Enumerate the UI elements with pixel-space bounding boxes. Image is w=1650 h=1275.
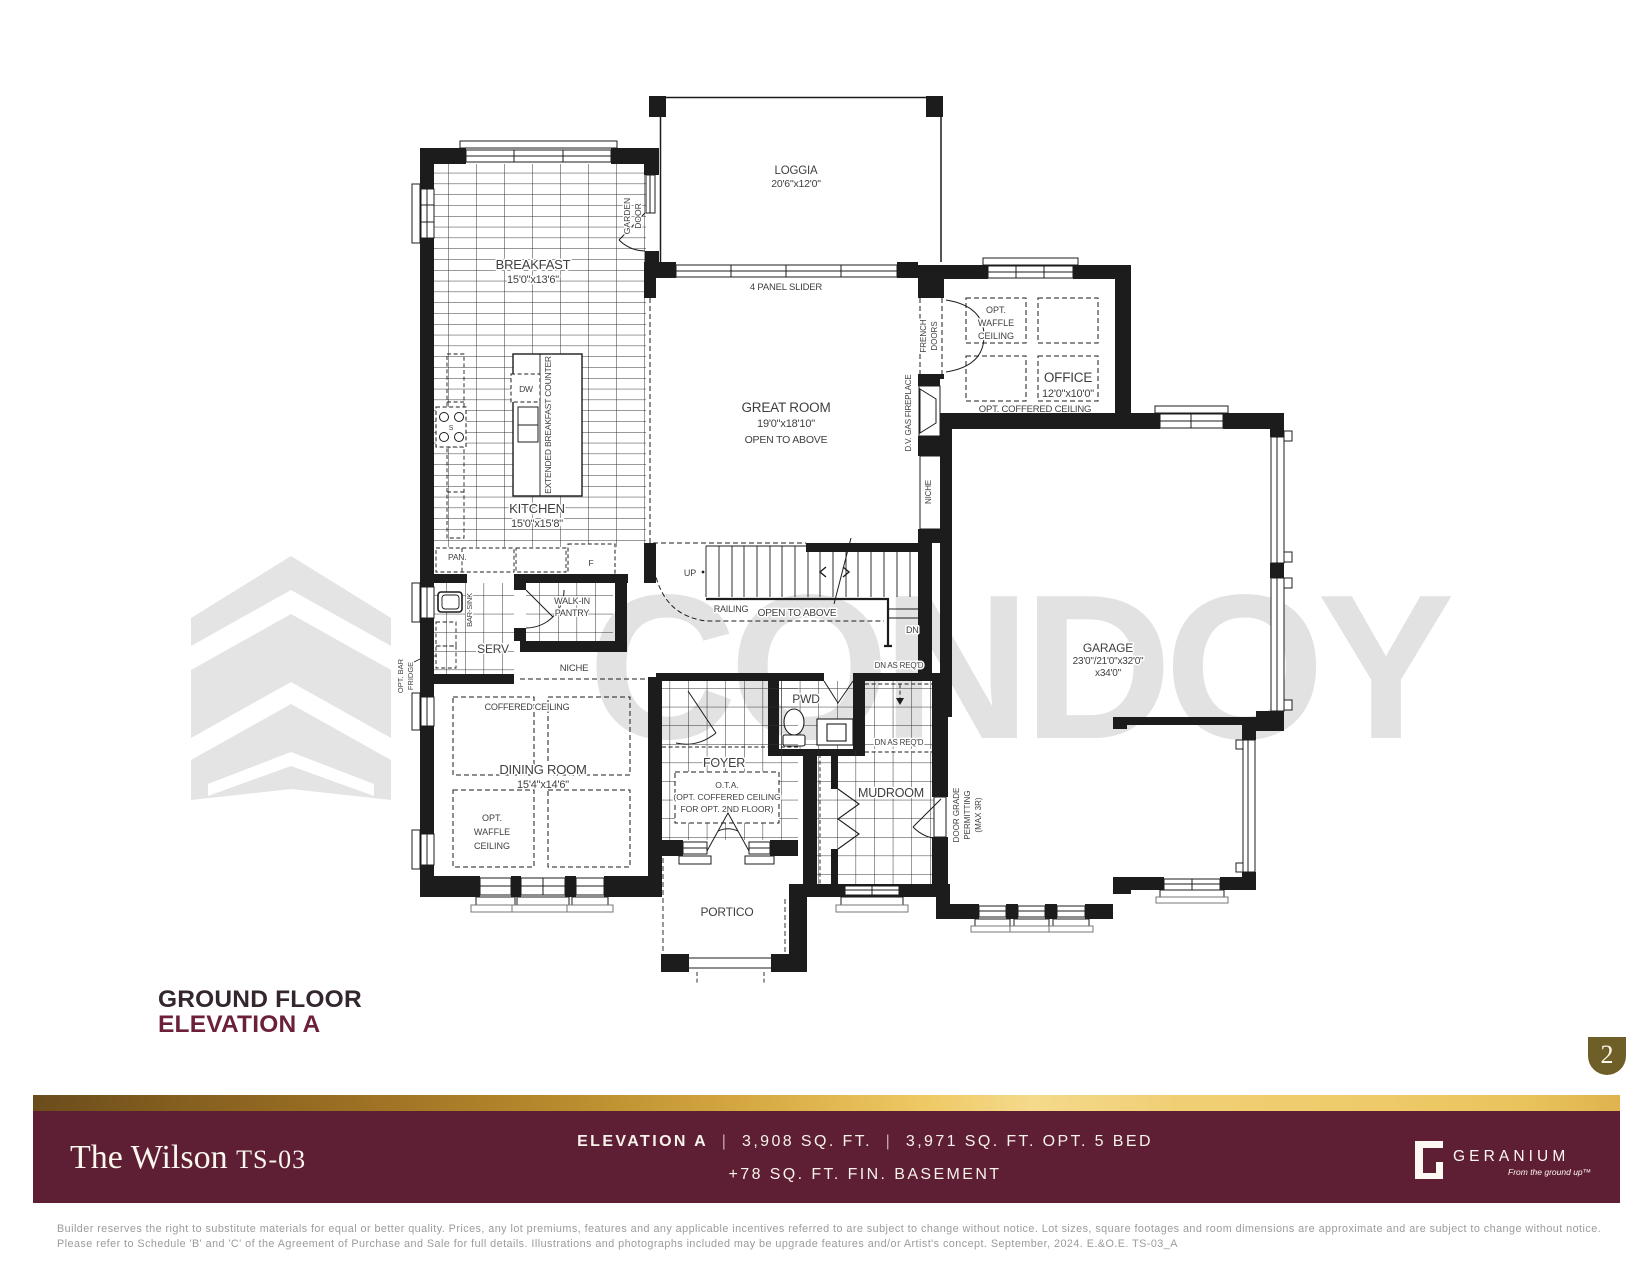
svg-text:S: S bbox=[449, 425, 454, 432]
svg-text:CEILING: CEILING bbox=[978, 331, 1014, 341]
svg-text:4 PANEL SLIDER: 4 PANEL SLIDER bbox=[750, 282, 823, 293]
svg-text:DW: DW bbox=[519, 384, 533, 394]
svg-text:OPEN TO ABOVE: OPEN TO ABOVE bbox=[758, 608, 837, 619]
svg-text:BAR-SINK: BAR-SINK bbox=[465, 593, 474, 627]
svg-text:15'0"x13'6": 15'0"x13'6" bbox=[507, 274, 559, 286]
svg-text:FRIDGE: FRIDGE bbox=[406, 662, 415, 690]
svg-text:NICHE: NICHE bbox=[924, 480, 933, 504]
svg-text:15'4"x14'6": 15'4"x14'6" bbox=[517, 779, 569, 791]
svg-text:GARDEN: GARDEN bbox=[622, 198, 632, 234]
svg-text:FOR OPT. 2ND FLOOR): FOR OPT. 2ND FLOOR) bbox=[680, 804, 773, 814]
svg-text:O.T.A.: O.T.A. bbox=[715, 780, 739, 790]
svg-text:OPT. BAR: OPT. BAR bbox=[396, 658, 405, 693]
svg-text:DOOR: DOOR bbox=[633, 203, 643, 229]
svg-text:DOORS: DOORS bbox=[930, 321, 939, 350]
svg-text:GREAT ROOM: GREAT ROOM bbox=[741, 400, 830, 415]
svg-text:UP: UP bbox=[684, 568, 696, 578]
svg-text:PORTICO: PORTICO bbox=[700, 905, 753, 919]
svg-text:23'0"/21'0"x32'0": 23'0"/21'0"x32'0" bbox=[1073, 656, 1144, 667]
svg-text:OFFICE: OFFICE bbox=[1044, 370, 1092, 385]
svg-text:CEILING: CEILING bbox=[474, 841, 510, 851]
svg-text:BREAKFAST: BREAKFAST bbox=[496, 257, 571, 272]
svg-text:PANTRY: PANTRY bbox=[555, 608, 590, 618]
svg-text:NICHE: NICHE bbox=[560, 663, 589, 674]
svg-text:12'0"x10'0": 12'0"x10'0" bbox=[1042, 388, 1094, 400]
svg-text:DN AS REQ'D: DN AS REQ'D bbox=[875, 738, 924, 747]
svg-text:COFFERED CEILING: COFFERED CEILING bbox=[485, 702, 570, 712]
svg-text:LOGGIA: LOGGIA bbox=[775, 165, 818, 177]
svg-text:DN: DN bbox=[906, 625, 919, 635]
svg-text:(OPT. COFFERED CEILING: (OPT. COFFERED CEILING bbox=[673, 792, 780, 802]
svg-text:RAILING: RAILING bbox=[714, 604, 749, 614]
svg-text:20'6"x12'0": 20'6"x12'0" bbox=[771, 178, 821, 190]
svg-text:D.V. GAS FIREPLACE: D.V. GAS FIREPLACE bbox=[904, 374, 913, 451]
svg-text:WAFFLE: WAFFLE bbox=[978, 318, 1014, 328]
svg-text:19'0"x18'10": 19'0"x18'10" bbox=[757, 418, 815, 430]
svg-text:FRENCH: FRENCH bbox=[919, 319, 928, 353]
svg-text:F: F bbox=[589, 558, 594, 568]
svg-text:WAFFLE: WAFFLE bbox=[474, 827, 510, 837]
svg-text:DINING ROOM: DINING ROOM bbox=[499, 762, 586, 777]
svg-text:PERMITTING: PERMITTING bbox=[963, 790, 972, 839]
svg-text:From the ground up™: From the ground up™ bbox=[1508, 1167, 1591, 1177]
svg-text:DOOR GRADE: DOOR GRADE bbox=[952, 788, 961, 843]
svg-text:EXTENDED BREAKFAST COUNTER: EXTENDED BREAKFAST COUNTER bbox=[543, 356, 553, 494]
svg-text:DN AS REQ'D: DN AS REQ'D bbox=[875, 661, 924, 670]
svg-text:15'0"x15'8": 15'0"x15'8" bbox=[511, 518, 563, 530]
svg-text:SERV: SERV bbox=[477, 642, 509, 656]
svg-text:KITCHEN: KITCHEN bbox=[509, 501, 565, 516]
svg-text:WALK-IN: WALK-IN bbox=[554, 596, 590, 606]
svg-text:OPT.: OPT. bbox=[986, 305, 1006, 315]
svg-text:x34'0": x34'0" bbox=[1095, 668, 1122, 679]
svg-text:GARAGE: GARAGE bbox=[1083, 641, 1133, 655]
svg-text:FOYER: FOYER bbox=[703, 756, 745, 770]
svg-text:GERANIUM: GERANIUM bbox=[1453, 1148, 1569, 1165]
svg-text:OPT.: OPT. bbox=[482, 813, 502, 823]
svg-text:MUDROOM: MUDROOM bbox=[858, 786, 924, 800]
svg-text:(MAX 3R): (MAX 3R) bbox=[974, 797, 983, 832]
svg-text:OPEN TO ABOVE: OPEN TO ABOVE bbox=[745, 434, 828, 446]
svg-text:PAN.: PAN. bbox=[448, 552, 466, 562]
